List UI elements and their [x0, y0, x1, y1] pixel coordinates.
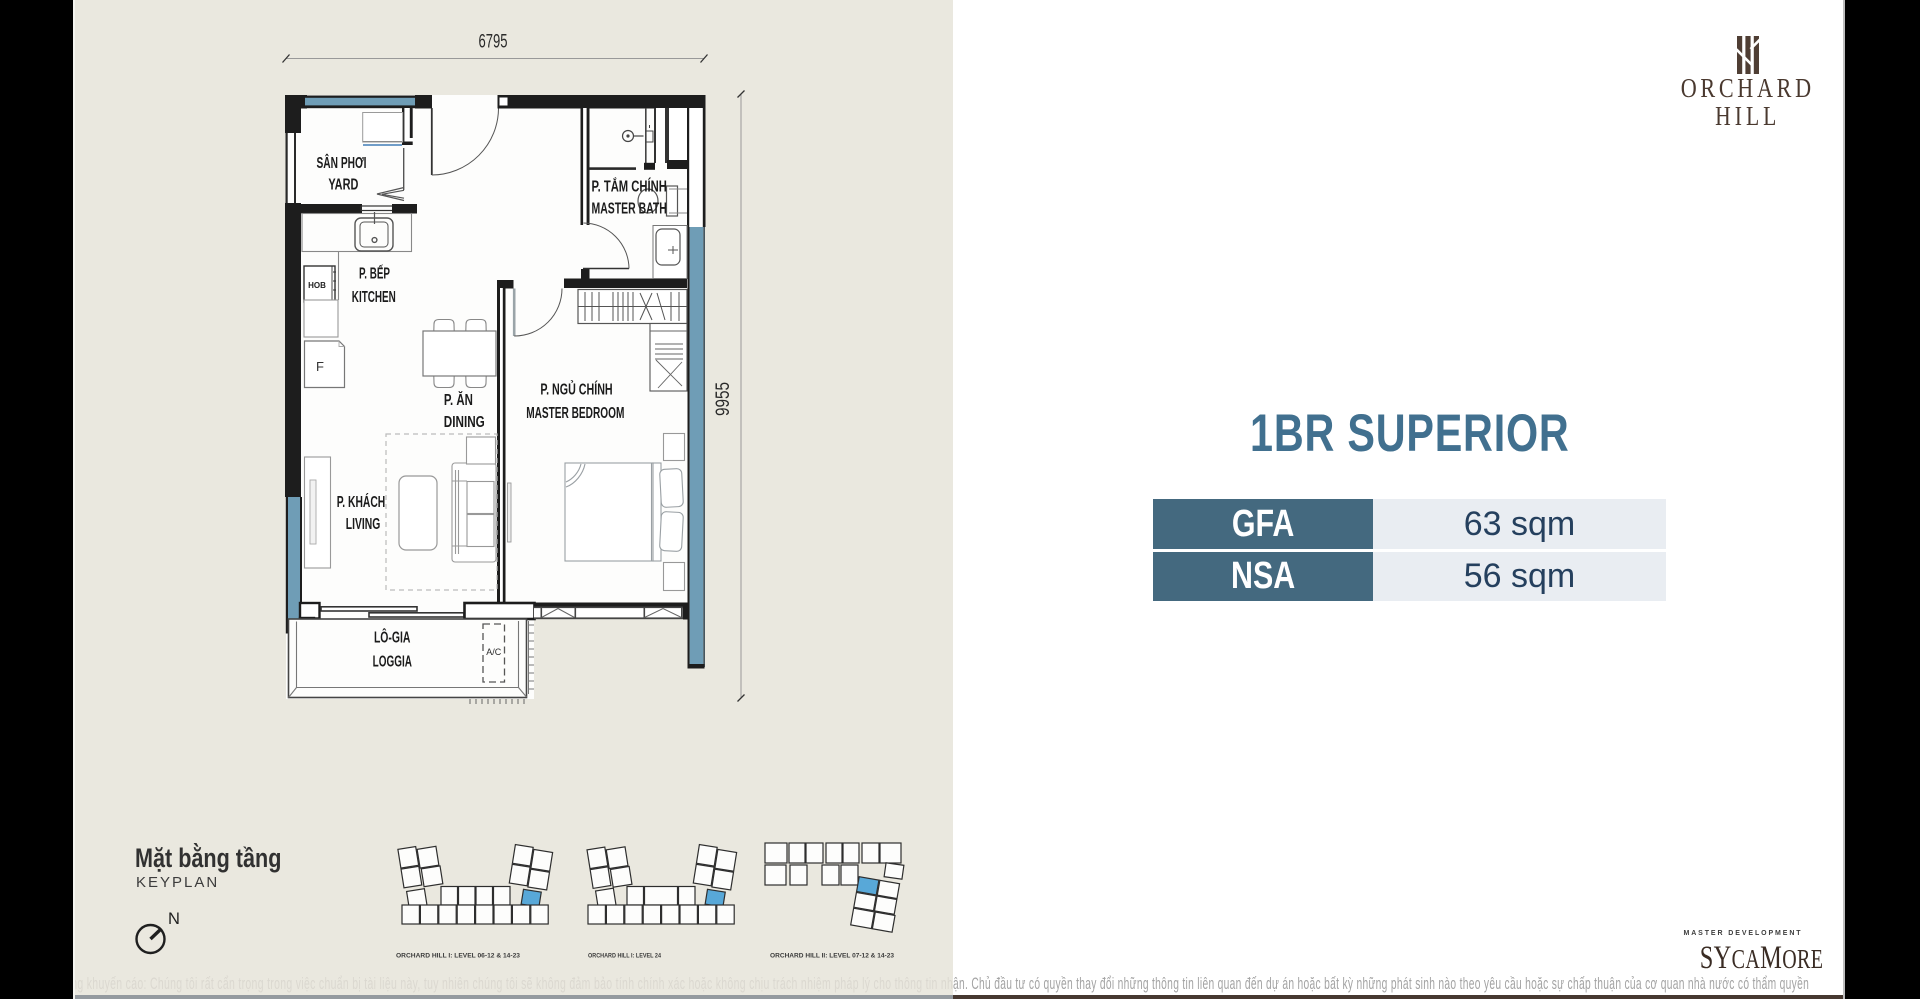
svg-text:A/C: A/C: [486, 647, 502, 657]
svg-text:P. BẾP: P. BẾP: [359, 264, 390, 283]
svg-text:F: F: [316, 359, 324, 374]
svg-text:P. NGỦ CHÍNH: P. NGỦ CHÍNH: [540, 380, 612, 399]
svg-text:ORCHARD HILL I: LEVEL 06-12 &: ORCHARD HILL I: LEVEL 06-12 & 14-23: [396, 953, 520, 960]
svg-text:KITCHEN: KITCHEN: [352, 289, 396, 306]
svg-text:9955: 9955: [713, 382, 734, 416]
svg-text:ORCHARD HILL I: LEVEL 24: ORCHARD HILL I: LEVEL 24: [588, 953, 661, 960]
svg-text:ORCHARD HILL II: LEVEL 07-12 &: ORCHARD HILL II: LEVEL 07-12 & 14-23: [770, 953, 894, 960]
svg-text:LIVING: LIVING: [346, 516, 381, 533]
svg-text:N: N: [168, 910, 180, 928]
svg-text:MASTER BEDROOM: MASTER BEDROOM: [526, 405, 624, 422]
svg-text:MASTER BATH: MASTER BATH: [592, 201, 667, 218]
svg-text:DINING: DINING: [444, 414, 485, 431]
svg-text:P. TẮM CHÍNH: P. TẮM CHÍNH: [592, 177, 667, 196]
svg-text:P. ĂN: P. ĂN: [444, 390, 473, 409]
svg-text:SÂN PHƠI: SÂN PHƠI: [317, 153, 367, 172]
svg-text:LÔ-GIA: LÔ-GIA: [374, 628, 411, 647]
svg-text:6795: 6795: [479, 32, 508, 53]
svg-text:HOB: HOB: [308, 281, 326, 290]
svg-text:LOGGIA: LOGGIA: [373, 654, 413, 671]
svg-text:YARD: YARD: [328, 176, 358, 193]
svg-text:P. KHÁCH: P. KHÁCH: [337, 492, 386, 511]
